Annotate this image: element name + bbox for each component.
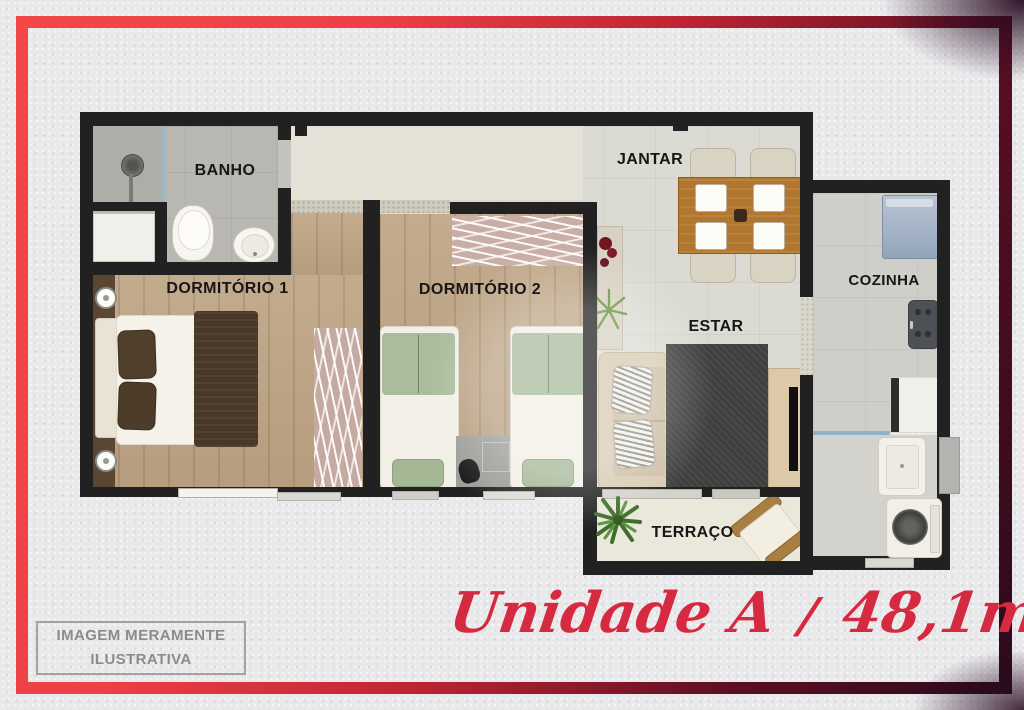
wall-fixture-icon [95, 287, 117, 309]
corner-shadow-top-right [884, 0, 1024, 80]
wall [155, 202, 167, 262]
wardrobe-bedroom1 [314, 328, 362, 487]
sofa-pillow [612, 418, 656, 469]
disclaimer-line2: ILUSTRATIVA [38, 648, 244, 672]
dining-table [678, 177, 802, 254]
flower-icon [607, 248, 617, 258]
dining-chair [690, 249, 736, 283]
window [178, 488, 278, 498]
wall [583, 202, 597, 497]
room-label-jantar: JANTAR [605, 151, 695, 169]
wall [450, 202, 583, 214]
pillow [117, 329, 157, 379]
washing-machine-icon [886, 498, 942, 558]
window [483, 491, 535, 500]
room-label-dormitorio1: DORMITÓRIO 1 [140, 280, 315, 298]
bedroom1-entry-floor [291, 213, 363, 275]
sink-icon [233, 227, 275, 263]
title-separator: / [796, 588, 821, 644]
unit-name: Unidade A [446, 580, 779, 646]
wall [80, 112, 812, 126]
single-bed-2 [510, 326, 589, 489]
terrace-sliding-door [712, 489, 760, 499]
wall [90, 202, 160, 211]
wall [278, 126, 291, 140]
laundry-sink [878, 437, 926, 496]
flower-icon [600, 258, 609, 267]
kitchen-counter [890, 377, 939, 433]
kitchen-door-opening [800, 297, 813, 375]
service-door [865, 558, 914, 568]
room-label-banho: BANHO [180, 162, 270, 180]
table-centerpiece [734, 209, 747, 222]
floorplan-page: BANHO DORMITÓRIO 1 DORMITÓRIO 2 JANTAR E… [0, 0, 1024, 710]
tv-icon [789, 387, 798, 471]
unit-title: Unidade A / 48,1m2 [441, 580, 1000, 680]
terrace-plant-icon [593, 494, 643, 546]
sofa-pillow [610, 365, 653, 416]
room-label-dormitorio2: DORMITÓRIO 2 [392, 281, 568, 299]
laundry-glass-divider [813, 431, 890, 435]
wardrobe-bedroom2 [452, 216, 583, 266]
wall [805, 180, 950, 193]
fridge-icon [882, 195, 939, 259]
double-bed-blanket [194, 311, 258, 447]
wall [583, 561, 813, 575]
wall [278, 188, 291, 262]
dining-chair [750, 249, 796, 283]
wall [800, 375, 813, 575]
toilet-icon [172, 205, 214, 261]
stove-icon [908, 300, 939, 349]
bathroom-door-opening [278, 140, 291, 188]
room-label-estar: ESTAR [676, 318, 756, 336]
hallway-floor [291, 126, 583, 200]
shower-niche [93, 213, 155, 262]
disclaimer-box: IMAGEM MERAMENTE ILUSTRATIVA [36, 621, 246, 675]
wall [363, 200, 380, 497]
living-rug [666, 344, 768, 489]
pillow [117, 381, 157, 430]
window [392, 491, 439, 500]
exterior-unit [939, 437, 960, 494]
room-label-terraco: TERRAÇO [645, 524, 740, 542]
unit-area: 48,1m [838, 580, 1024, 646]
wall [800, 112, 813, 297]
shower-stem [129, 174, 133, 204]
wall-stub [295, 126, 307, 136]
shower-glass-divider [161, 126, 165, 204]
room-label-cozinha: COZINHA [834, 272, 934, 289]
single-bed-1 [380, 326, 459, 489]
wall-fixture-icon [95, 450, 117, 472]
wall [80, 112, 93, 497]
disclaimer-line1: IMAGEM MERAMENTE [38, 624, 244, 648]
window-sill [277, 492, 341, 501]
wall [80, 262, 291, 275]
wall-column [673, 112, 688, 131]
